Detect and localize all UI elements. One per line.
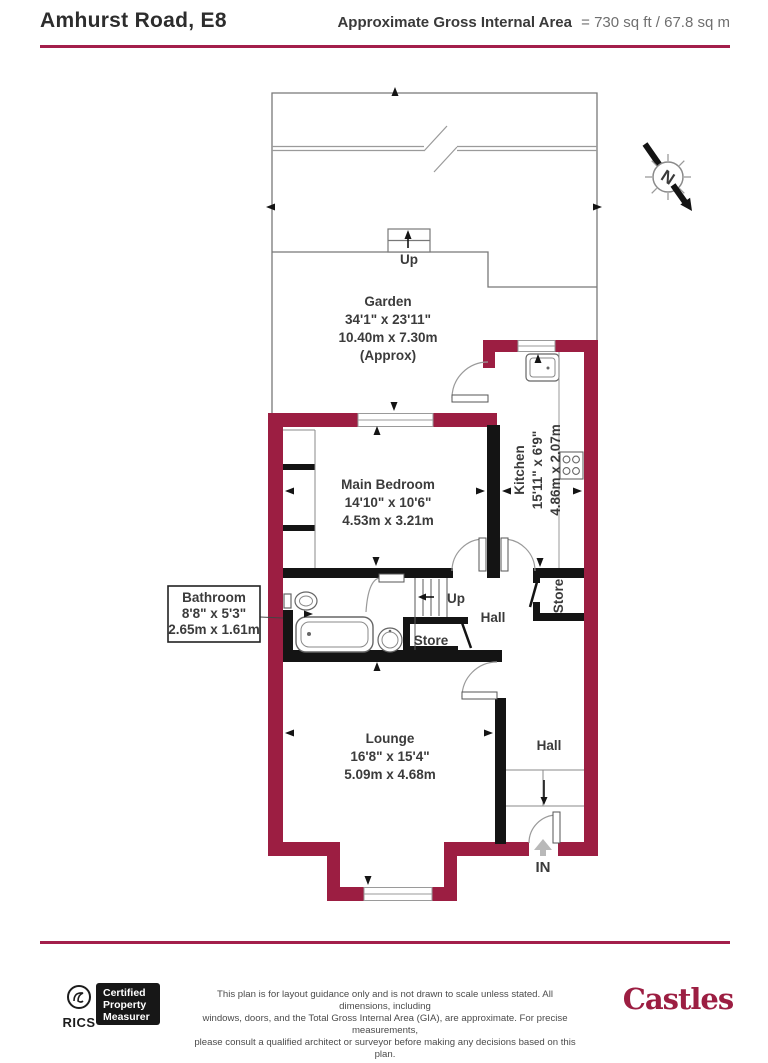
stairs-direction-arrow [418,594,426,601]
kitchen-door-leaf [501,538,508,571]
bathroom-label: Bathroom [182,590,246,605]
badge-line: Certified [103,987,160,999]
lounge-door-leaf [462,692,497,699]
wall-kitchen-top-left [483,340,518,352]
badge-line: Measurer [103,1011,160,1023]
garden-dims-metric: 10.40m x 7.30m [338,330,437,345]
wall-bottom-right [558,842,598,856]
garden-steps [388,229,430,252]
store-mid-label: Store [414,633,449,648]
bedroom-alcove [283,430,315,568]
bedroom-alcove-stub-bottom [283,525,315,531]
hall-upper-label: Hall [481,610,506,625]
store-side-stub-top [533,570,540,583]
basin-icon [378,628,402,652]
entry-steps-arrow [541,797,548,805]
wall-bath-stub [283,610,293,652]
rics-wordmark: RICS [57,1015,101,1030]
disclaimer-line: windows, doors, and the Total Gross Inte… [193,1013,577,1037]
wall-bay-right [444,856,457,901]
garden-fence-line [272,126,597,172]
back-door-arc [452,362,488,398]
stairs-up-label: Up [447,591,465,606]
wall-bottom-left [268,842,340,856]
badge-line: Property [103,999,160,1011]
bathroom-door-leaf [379,574,404,582]
floorplan-page: Amhurst Road, E8 Approximate Gross Inter… [0,0,768,1063]
front-door-leaf [553,812,560,843]
hob-icon [560,452,583,479]
lounge-dims-metric: 5.09m x 4.68m [344,767,436,782]
store-side-stub-bottom [533,602,540,617]
north-compass-icon: N [645,144,692,211]
footer-rule [40,941,730,944]
bedroom-alcove-stub-top [283,464,315,470]
back-door-leaf [452,395,488,402]
wall-left [268,413,283,856]
garden-label: Garden [364,294,411,309]
bathtub-icon [296,617,373,652]
floorplan-drawing: Bathroom 8'8" x 5'3" 2.65m x 1.61m Garde… [0,0,768,1063]
store-side-wall-top [533,570,584,578]
kitchen-label: Kitchen [512,445,527,495]
toilet-icon [284,592,317,610]
entrance-arrow-icon [534,839,552,856]
bedroom-dims-metric: 4.53m x 3.21m [342,513,434,528]
castles-logo: Castles [620,982,736,1016]
bedroom-label: Main Bedroom [341,477,435,492]
wall-bedroom-top-left [268,413,358,427]
wall-bedroom-bottom [283,568,453,578]
store-mid-door-leaf [461,620,471,648]
wall-right [584,340,598,856]
garden-dims-imperial: 34'1" x 23'11" [345,312,431,327]
disclaimer-line: This plan is for layout guidance only an… [193,989,577,1013]
bathroom-dims-imperial: 8'8" x 5'3" [182,606,246,621]
disclaimer-text: This plan is for layout guidance only an… [193,989,577,1061]
garden-approx-note: (Approx) [360,348,416,363]
kitchen-dims-metric: 4.86m x 2.07m [548,424,563,516]
kitchen-sink-icon [526,354,559,381]
rics-lion-icon [57,984,101,1012]
garden-up-label: Up [400,252,418,267]
bathroom-callout: Bathroom 8'8" x 5'3" 2.65m x 1.61m [168,586,283,642]
kitchen-window [518,341,555,352]
bathroom-dims-metric: 2.65m x 1.61m [168,622,260,637]
wall-bay-bottom-left [327,887,364,901]
bedroom-window [358,414,433,427]
hall-lower-label: Hall [537,738,562,753]
wall-lounge-hall-divider [495,698,506,844]
store-side-label: Store [551,578,566,613]
bedroom-dims-imperial: 14'10" x 10'6" [345,495,432,510]
wall-bedroom-top-right [433,413,497,427]
bedroom-door-leaf [479,538,486,571]
bay-window [364,888,432,901]
entrance-in-label: IN [536,859,551,876]
disclaimer-line: please consult a qualified architect or … [193,1037,577,1061]
certified-property-measurer-badge: Certified Property Measurer [96,983,160,1025]
kitchen-dims-imperial: 15'11" x 6'9" [530,431,545,510]
wall-bedroom-kitchen-divider [487,425,500,578]
rics-logo: RICS [57,984,101,1030]
bathroom-door-arc [366,578,379,612]
lounge-label: Lounge [366,731,415,746]
store-mid-wall-top [403,617,468,624]
lounge-dims-imperial: 16'8" x 15'4" [350,749,429,764]
wall-bottom-mid [444,842,529,856]
